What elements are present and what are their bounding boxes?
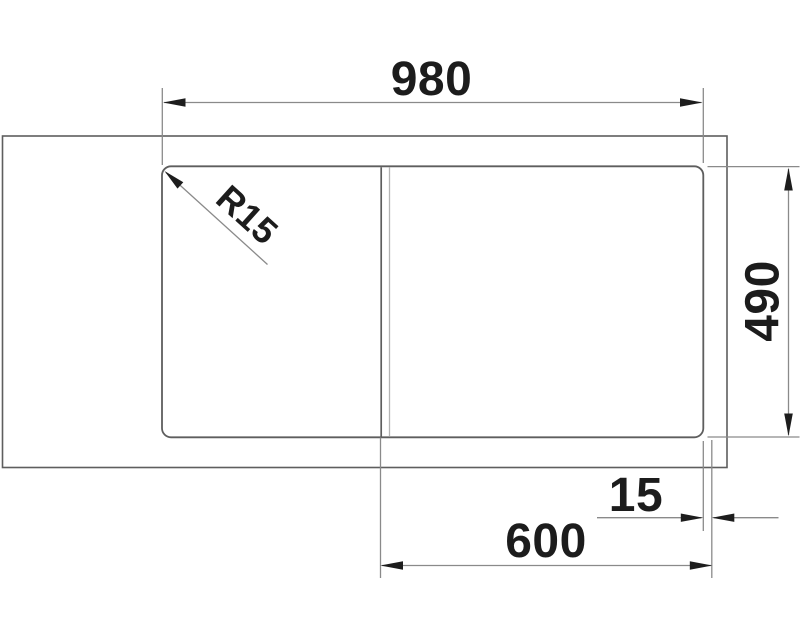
overall-width-value: 980 xyxy=(391,53,473,106)
overall-depth-value: 490 xyxy=(737,260,790,342)
sink-dimension-drawing: 980 490 15 600 xyxy=(0,0,800,640)
bowl-cabinet-width-value: 600 xyxy=(505,515,587,568)
rim-offset-value: 15 xyxy=(609,469,663,522)
drawing-canvas: 980 490 15 600 xyxy=(0,0,800,640)
